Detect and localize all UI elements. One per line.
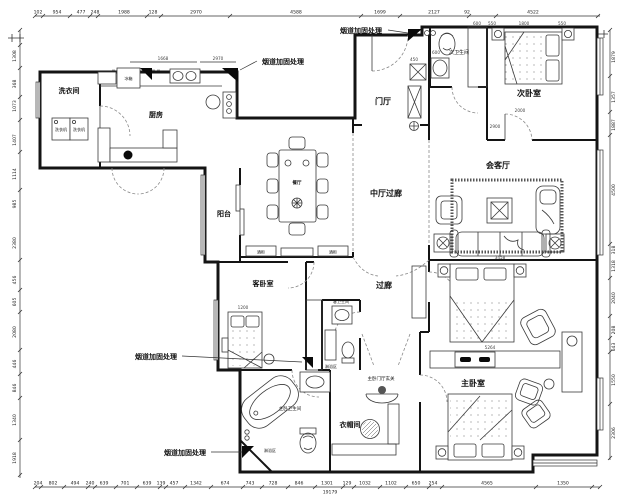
dim-inner: 1668 bbox=[158, 56, 169, 61]
dim-left: 1114 bbox=[12, 168, 18, 180]
svg-text:洗衣机: 洗衣机 bbox=[73, 126, 85, 132]
room-label-guest-bedroom: 客卧室 bbox=[252, 279, 274, 288]
dim-left: 1407 bbox=[12, 134, 18, 146]
window bbox=[533, 460, 597, 466]
dim-top: 1988 bbox=[118, 10, 130, 16]
washing-machine: 洗衣机 bbox=[52, 118, 70, 140]
dim-left: 2380 bbox=[12, 237, 18, 249]
dim-inner: 1200 bbox=[238, 305, 249, 310]
svg-text:酒柜: 酒柜 bbox=[329, 249, 337, 255]
dim-bottom: 1342 bbox=[190, 481, 202, 487]
svg-text:洗衣机: 洗衣机 bbox=[55, 126, 67, 132]
dim-inner: 5264 bbox=[485, 345, 496, 350]
dim-bottom: 1102 bbox=[385, 481, 397, 487]
room-label-kitchen: 厨房 bbox=[149, 110, 163, 119]
dim-right: 1318 bbox=[611, 260, 617, 272]
kitchen-sink bbox=[170, 69, 200, 83]
dim-bottom: 743 bbox=[246, 481, 255, 487]
dim-bottom: 1350 bbox=[557, 481, 569, 487]
dim-inner: 550 bbox=[488, 21, 496, 26]
room-label-foyer: 门厅 bbox=[375, 96, 391, 106]
dim-top: 4522 bbox=[527, 10, 539, 16]
nightstand bbox=[438, 264, 450, 277]
dim-inner: 3458 bbox=[495, 255, 506, 260]
dim-top: 477 bbox=[77, 10, 86, 16]
basin bbox=[431, 58, 449, 78]
dim-inner: 2970 bbox=[213, 56, 224, 61]
svg-text:烟道加固处理: 烟道加固处理 bbox=[135, 352, 177, 361]
room-label-dining: 餐厅 bbox=[292, 179, 302, 186]
dim-bottom: 4565 bbox=[481, 481, 493, 487]
dim-top: 2970 bbox=[190, 10, 202, 16]
dim-right: 1887 bbox=[611, 119, 617, 131]
dim-left: 1308 bbox=[12, 50, 18, 62]
room-label-master-bedroom: 主卧室 bbox=[461, 378, 485, 388]
dim-right: 643 bbox=[611, 343, 617, 352]
dim-inner: 550 bbox=[558, 21, 566, 26]
cabinet bbox=[325, 330, 336, 360]
dim-inner: 600 bbox=[432, 50, 440, 55]
nightstand bbox=[514, 264, 526, 277]
dim-right: 4500 bbox=[611, 184, 617, 196]
dim-bottom: 639 bbox=[100, 481, 109, 487]
dim-inner: 600 bbox=[473, 21, 481, 26]
svg-text:冰箱: 冰箱 bbox=[125, 75, 133, 81]
dim-bottom: 701 bbox=[121, 481, 130, 487]
dim-bottom: 457 bbox=[170, 481, 179, 487]
dim-bottom: 1301 bbox=[321, 481, 333, 487]
dim-right: 1879 bbox=[611, 51, 617, 63]
dim-top: 1699 bbox=[374, 10, 386, 16]
dim-top: 128 bbox=[149, 10, 158, 16]
basin bbox=[300, 372, 330, 392]
dim-inner: 2900 bbox=[490, 124, 501, 129]
room-label-cloakroom: 衣帽间 bbox=[340, 420, 361, 429]
nightstand bbox=[512, 446, 524, 459]
dim-right: 1357 bbox=[611, 91, 617, 103]
room-label-corridor: 过廊 bbox=[376, 280, 392, 290]
flue-note: 烟道加固处理 bbox=[240, 57, 304, 70]
room-label-balcony: 阳台 bbox=[217, 209, 231, 218]
room-label-living: 会客厅 bbox=[486, 160, 510, 170]
dim-bottom: 204 bbox=[34, 481, 43, 487]
room-label-master-foyer: 主卧门厅玄关 bbox=[368, 375, 395, 382]
dim-left: 368 bbox=[12, 80, 18, 89]
dim-left: 1340 bbox=[12, 414, 18, 426]
dim-inner: 2000 bbox=[515, 108, 526, 113]
fridge: 冰箱 bbox=[117, 68, 140, 88]
dim-bottom: 728 bbox=[269, 481, 278, 487]
dim-left: 456 bbox=[12, 276, 18, 285]
floor-plan-drawing: 102 954 477 248 1988 128 2970 4588 1699 … bbox=[0, 0, 635, 500]
dim-left: 2080 bbox=[12, 326, 18, 338]
dim-top: 248 bbox=[91, 10, 100, 16]
dim-left: 1073 bbox=[12, 100, 18, 112]
window bbox=[201, 175, 205, 255]
ottoman bbox=[361, 420, 380, 439]
dimension-labels-bottom: 204 802 494 240 639 701 639 139 457 1342… bbox=[34, 481, 569, 496]
window bbox=[597, 378, 603, 430]
dim-right: 2306 bbox=[611, 427, 617, 439]
dim-bottom: 494 bbox=[71, 481, 80, 487]
dim-right: 1550 bbox=[611, 374, 617, 386]
window bbox=[214, 300, 218, 360]
dim-left: 1918 bbox=[12, 452, 18, 464]
window bbox=[597, 38, 603, 95]
dim-bottom: 139 bbox=[157, 481, 166, 487]
dim-bottom: 639 bbox=[143, 481, 152, 487]
dim-top: 954 bbox=[53, 10, 62, 16]
room-label-guest-bath: 客卫生间 bbox=[333, 298, 349, 304]
nightstand bbox=[436, 446, 448, 459]
dim-top: 4588 bbox=[290, 10, 302, 16]
dim-bottom: 846 bbox=[295, 481, 304, 487]
window bbox=[36, 82, 40, 118]
dim-bottom: 674 bbox=[221, 481, 230, 487]
room-label-shower-guest: 淋浴区 bbox=[325, 363, 337, 369]
svg-text:烟道加固处理: 烟道加固处理 bbox=[262, 57, 304, 66]
table-plant bbox=[292, 198, 302, 208]
room-label-shower-master: 淋浴区 bbox=[264, 447, 276, 453]
coffee-table bbox=[487, 198, 512, 223]
dim-bottom: 802 bbox=[49, 481, 58, 487]
dim-bottom: 129 bbox=[343, 481, 352, 487]
dim-right: 318 bbox=[611, 246, 617, 255]
room-label-master-bath: 主卧卫生间 bbox=[279, 405, 302, 412]
nightstand bbox=[222, 338, 228, 352]
dim-left: 605 bbox=[12, 298, 18, 307]
floor-plan-page: 102 954 477 248 1988 128 2970 4588 1699 … bbox=[0, 0, 635, 500]
dim-bottom: 1032 bbox=[359, 481, 371, 487]
svg-text:烟道加固处理: 烟道加固处理 bbox=[164, 448, 206, 457]
flue-note: 烟道加固处理 bbox=[164, 448, 242, 457]
room-label-second-bath: 次卫生间 bbox=[449, 49, 469, 56]
dimension-labels-top: 102 954 477 248 1988 128 2970 4588 1699 … bbox=[34, 10, 539, 16]
dim-left: 985 bbox=[12, 200, 18, 209]
nightstand bbox=[562, 28, 574, 40]
dim-inner: 450 bbox=[410, 57, 418, 62]
dim-right: 208 bbox=[611, 326, 617, 335]
dim-bottom-total: 19179 bbox=[323, 490, 338, 496]
laundry-fixtures: 洗衣机 洗衣机 bbox=[52, 118, 88, 140]
dim-left: 846 bbox=[12, 384, 18, 393]
dim-top: 92 bbox=[464, 10, 470, 16]
dim-inner: 1800 bbox=[519, 21, 530, 26]
microwave bbox=[98, 72, 116, 84]
nightstand bbox=[492, 28, 504, 40]
room-label-second-bedroom: 次卧室 bbox=[517, 88, 541, 98]
dresser bbox=[562, 332, 582, 392]
svg-text:酒柜: 酒柜 bbox=[257, 249, 265, 255]
room-label-laundry: 洗衣间 bbox=[59, 86, 80, 95]
dimension-labels-left: 1308 368 1073 1407 1114 985 2380 456 605… bbox=[12, 50, 18, 464]
dim-left: 446 bbox=[12, 360, 18, 369]
svg-text:烟道加固处理: 烟道加固处理 bbox=[340, 26, 382, 35]
dim-bottom: 254 bbox=[429, 481, 438, 487]
room-label-central-hall: 中厅过廊 bbox=[370, 188, 402, 198]
dim-bottom: 240 bbox=[86, 481, 95, 487]
dim-top: 102 bbox=[34, 10, 43, 16]
washing-machine: 洗衣机 bbox=[70, 118, 88, 140]
dim-bottom: 650 bbox=[412, 481, 421, 487]
window bbox=[597, 150, 603, 255]
dimension-labels-right: 1879 1357 1887 4500 318 1318 2040 208 64… bbox=[611, 51, 617, 439]
dim-right: 2040 bbox=[611, 292, 617, 304]
dim-top: 2127 bbox=[428, 10, 440, 16]
